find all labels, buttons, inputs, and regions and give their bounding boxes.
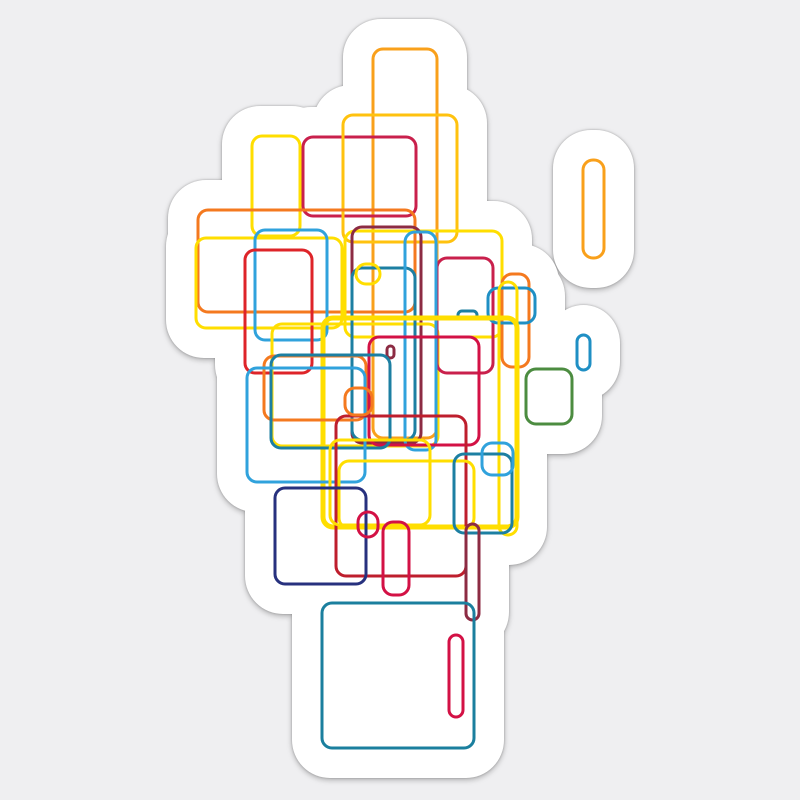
sticker-lobe [419,605,493,747]
sticker-artwork [0,0,800,800]
sticker-product-stage [0,0,800,800]
sticker-lobe [553,130,634,288]
